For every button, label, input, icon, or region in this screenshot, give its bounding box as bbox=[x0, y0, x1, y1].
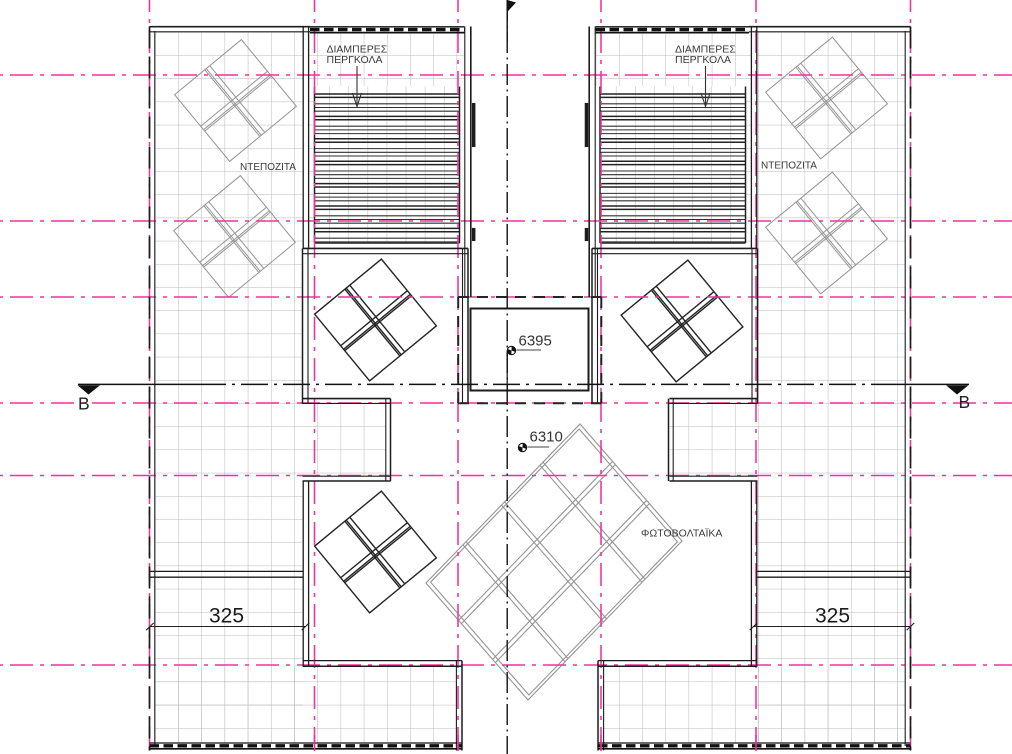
svg-text:B: B bbox=[78, 394, 90, 414]
svg-text:B: B bbox=[959, 392, 971, 412]
svg-text:6310: 6310 bbox=[530, 429, 563, 446]
svg-text:ΝΤΕΠΟΖΙΤΑ: ΝΤΕΠΟΖΙΤΑ bbox=[240, 162, 296, 173]
svg-text:ΠΕΡΓΚΟΛΑ: ΠΕΡΓΚΟΛΑ bbox=[327, 54, 383, 66]
svg-text:325: 325 bbox=[815, 605, 850, 628]
svg-text:ΦΩΤΟΒΟΛΤΑΪΚΑ: ΦΩΤΟΒΟΛΤΑΪΚΑ bbox=[641, 528, 722, 540]
svg-text:ΠΕΡΓΚΟΛΑ: ΠΕΡΓΚΟΛΑ bbox=[675, 54, 731, 66]
svg-text:325: 325 bbox=[209, 605, 244, 628]
svg-text:6395: 6395 bbox=[519, 333, 552, 350]
svg-text:ΝΤΕΠΟΖΙΤΑ: ΝΤΕΠΟΖΙΤΑ bbox=[761, 161, 817, 172]
